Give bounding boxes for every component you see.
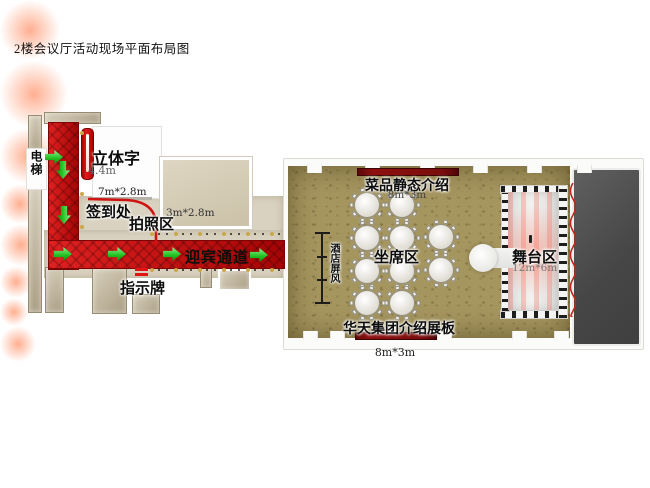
barrier-post-dot bbox=[238, 269, 240, 271]
barrier-post-dot bbox=[278, 269, 280, 271]
chair bbox=[416, 236, 420, 241]
checkin-label: 签到处 bbox=[86, 201, 131, 222]
page-title: 2楼会议厅活动现场平面布局图 bbox=[14, 38, 190, 57]
intro-board-size: 8m*3m bbox=[350, 346, 440, 359]
signboard-marker-top bbox=[135, 268, 148, 271]
dish-board-size: 8m*3m bbox=[357, 189, 457, 201]
wall-column-below-1 bbox=[45, 267, 64, 313]
chair bbox=[423, 235, 427, 240]
welcome-channel-label: 迎宾通道 bbox=[185, 246, 249, 267]
wall-column-below-5 bbox=[218, 269, 251, 291]
floral-glow-decor bbox=[0, 298, 28, 326]
hotel-screen-bar-bottom bbox=[315, 302, 330, 304]
barrier-post-dot bbox=[198, 232, 202, 236]
chair bbox=[349, 269, 353, 274]
table-top bbox=[428, 224, 454, 250]
carpet-post-dot bbox=[80, 131, 84, 135]
barrier-post-dot bbox=[278, 233, 280, 235]
barrier-post-dot bbox=[246, 268, 250, 272]
chair bbox=[416, 269, 420, 274]
barrier-post-dot bbox=[270, 268, 274, 272]
barrier-post-dot bbox=[174, 268, 178, 272]
barrier-post-dot bbox=[166, 269, 168, 271]
banquet-table bbox=[347, 283, 387, 323]
barrier-post-dot bbox=[198, 268, 202, 272]
barrier-post-dot bbox=[206, 233, 208, 235]
barrier-post-dot bbox=[262, 269, 264, 271]
signboard-marker-bottom bbox=[135, 273, 148, 276]
barrier-post-dot bbox=[150, 268, 154, 272]
stage-size: 12m*6m bbox=[512, 262, 557, 274]
wall-column-left bbox=[28, 187, 42, 313]
chair bbox=[384, 203, 388, 208]
banquet-table bbox=[382, 283, 422, 323]
chair bbox=[384, 236, 388, 241]
table-top bbox=[428, 257, 454, 283]
barrier-post-dot bbox=[262, 233, 264, 235]
barrier-post-dot bbox=[182, 269, 184, 271]
barrier-post-dot bbox=[254, 269, 256, 271]
seating-area-label: 坐席区 bbox=[374, 246, 419, 267]
barrier-post-dot bbox=[206, 269, 208, 271]
door-opening-top bbox=[577, 165, 592, 173]
chair bbox=[384, 301, 388, 306]
chair bbox=[455, 235, 459, 240]
chair bbox=[416, 301, 420, 306]
chair bbox=[433, 283, 439, 288]
backstage-area bbox=[572, 168, 641, 346]
chair bbox=[443, 283, 449, 288]
carpet-post-dot bbox=[80, 225, 84, 229]
barrier-post-dot bbox=[246, 232, 250, 236]
barrier-post-dot bbox=[214, 233, 216, 235]
door-opening-top bbox=[473, 165, 488, 173]
stage-circle-platform bbox=[469, 244, 497, 272]
floor-plan-canvas: 2楼会议厅活动现场平面布局图 电梯 立体字 4.4m 7m*2.8m 签到处 3… bbox=[0, 0, 650, 488]
barrier-post-dot bbox=[222, 232, 226, 236]
photo-area-label: 拍照区 bbox=[129, 213, 174, 234]
barrier-post-dot bbox=[238, 233, 240, 235]
barrier-post-dot bbox=[190, 269, 192, 271]
chair bbox=[349, 236, 353, 241]
door-opening-bottom bbox=[512, 331, 527, 339]
barrier-post-dot bbox=[230, 269, 232, 271]
door-opening-top bbox=[527, 165, 542, 173]
sign-3d-height: 4.4m bbox=[88, 164, 116, 177]
chair bbox=[423, 268, 427, 273]
carpet-post-dot bbox=[80, 192, 84, 196]
chair bbox=[455, 268, 459, 273]
barrier-post-dot bbox=[190, 233, 192, 235]
banquet-table bbox=[421, 250, 461, 290]
barrier-post-dot bbox=[214, 269, 216, 271]
floral-glow-decor bbox=[0, 326, 36, 362]
barrier-post-dot bbox=[174, 232, 178, 236]
barrier-post-dot bbox=[222, 268, 226, 272]
chair bbox=[349, 301, 353, 306]
chair bbox=[416, 203, 420, 208]
door-opening-top bbox=[307, 165, 322, 173]
elevator-label: 电梯 bbox=[28, 150, 45, 188]
signboard-label: 指示牌 bbox=[120, 277, 165, 298]
intro-board-label: 华天集团介绍展板 bbox=[343, 318, 447, 338]
barrier-post-dot bbox=[182, 233, 184, 235]
stage-mic-mark bbox=[529, 235, 532, 243]
barrier-post-dot bbox=[254, 233, 256, 235]
sign-3d-size: 7m*2.8m bbox=[98, 186, 147, 198]
door-opening-bottom bbox=[303, 331, 318, 339]
hotel-screen-label: 酒店屏风 bbox=[326, 243, 341, 295]
barrier-post-dot bbox=[230, 233, 232, 235]
chair bbox=[349, 203, 353, 208]
table-top bbox=[389, 290, 415, 316]
hotel-screen-line bbox=[321, 233, 323, 303]
door-opening-bottom bbox=[554, 331, 569, 339]
barrier-post-dot bbox=[158, 269, 160, 271]
chair bbox=[384, 269, 388, 274]
table-top bbox=[354, 290, 380, 316]
wall-column-below-4 bbox=[200, 268, 212, 288]
stage-curtain-wave bbox=[566, 183, 580, 317]
wall-column-topleft bbox=[28, 115, 42, 151]
barrier-post-dot bbox=[270, 232, 274, 236]
hotel-screen-bar-top bbox=[315, 232, 330, 234]
